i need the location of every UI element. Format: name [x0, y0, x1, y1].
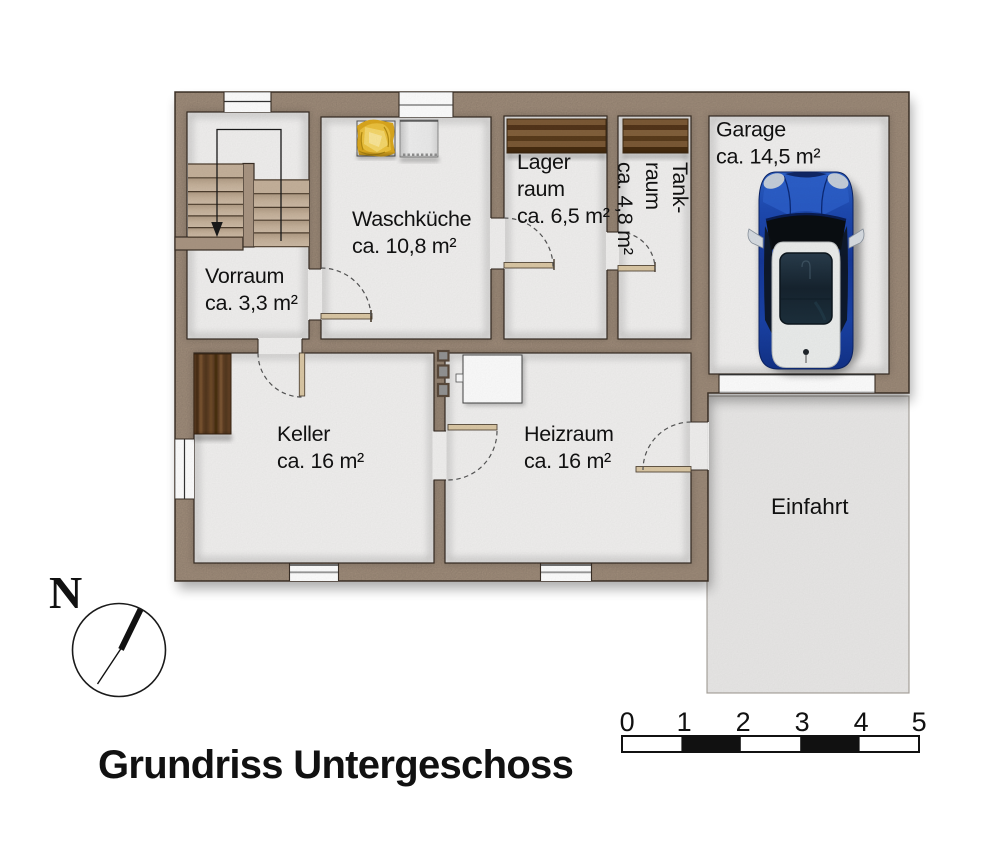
svg-text:ca. 16 m²: ca. 16 m² — [524, 449, 611, 473]
svg-text:ca. 4,8 m²: ca. 4,8 m² — [613, 162, 637, 255]
svg-text:ca. 14,5 m²: ca. 14,5 m² — [716, 145, 820, 169]
svg-text:Waschküche: Waschküche — [352, 207, 471, 231]
svg-text:ca. 16 m²: ca. 16 m² — [277, 449, 364, 473]
svg-text:Lager: Lager — [517, 150, 571, 174]
svg-text:0: 0 — [620, 707, 635, 737]
svg-text:4: 4 — [854, 707, 869, 737]
svg-text:Heizraum: Heizraum — [524, 422, 614, 446]
svg-text:ca. 3,3 m²: ca. 3,3 m² — [205, 291, 298, 315]
svg-text:Grundriss Untergeschoss: Grundriss Untergeschoss — [98, 743, 573, 787]
svg-text:Vorraum: Vorraum — [205, 264, 284, 288]
svg-text:5: 5 — [912, 707, 927, 737]
svg-text:raum: raum — [517, 177, 565, 201]
svg-text:1: 1 — [677, 707, 692, 737]
svg-text:Keller: Keller — [277, 422, 330, 446]
svg-text:ca. 10,8 m²: ca. 10,8 m² — [352, 234, 456, 258]
svg-text:3: 3 — [795, 707, 810, 737]
svg-text:N: N — [49, 567, 82, 618]
svg-text:Garage: Garage — [716, 118, 786, 142]
svg-text:raum: raum — [641, 162, 665, 210]
svg-text:ca. 6,5 m²: ca. 6,5 m² — [517, 204, 610, 228]
svg-text:Tank-: Tank- — [668, 162, 692, 213]
svg-text:2: 2 — [736, 707, 751, 737]
